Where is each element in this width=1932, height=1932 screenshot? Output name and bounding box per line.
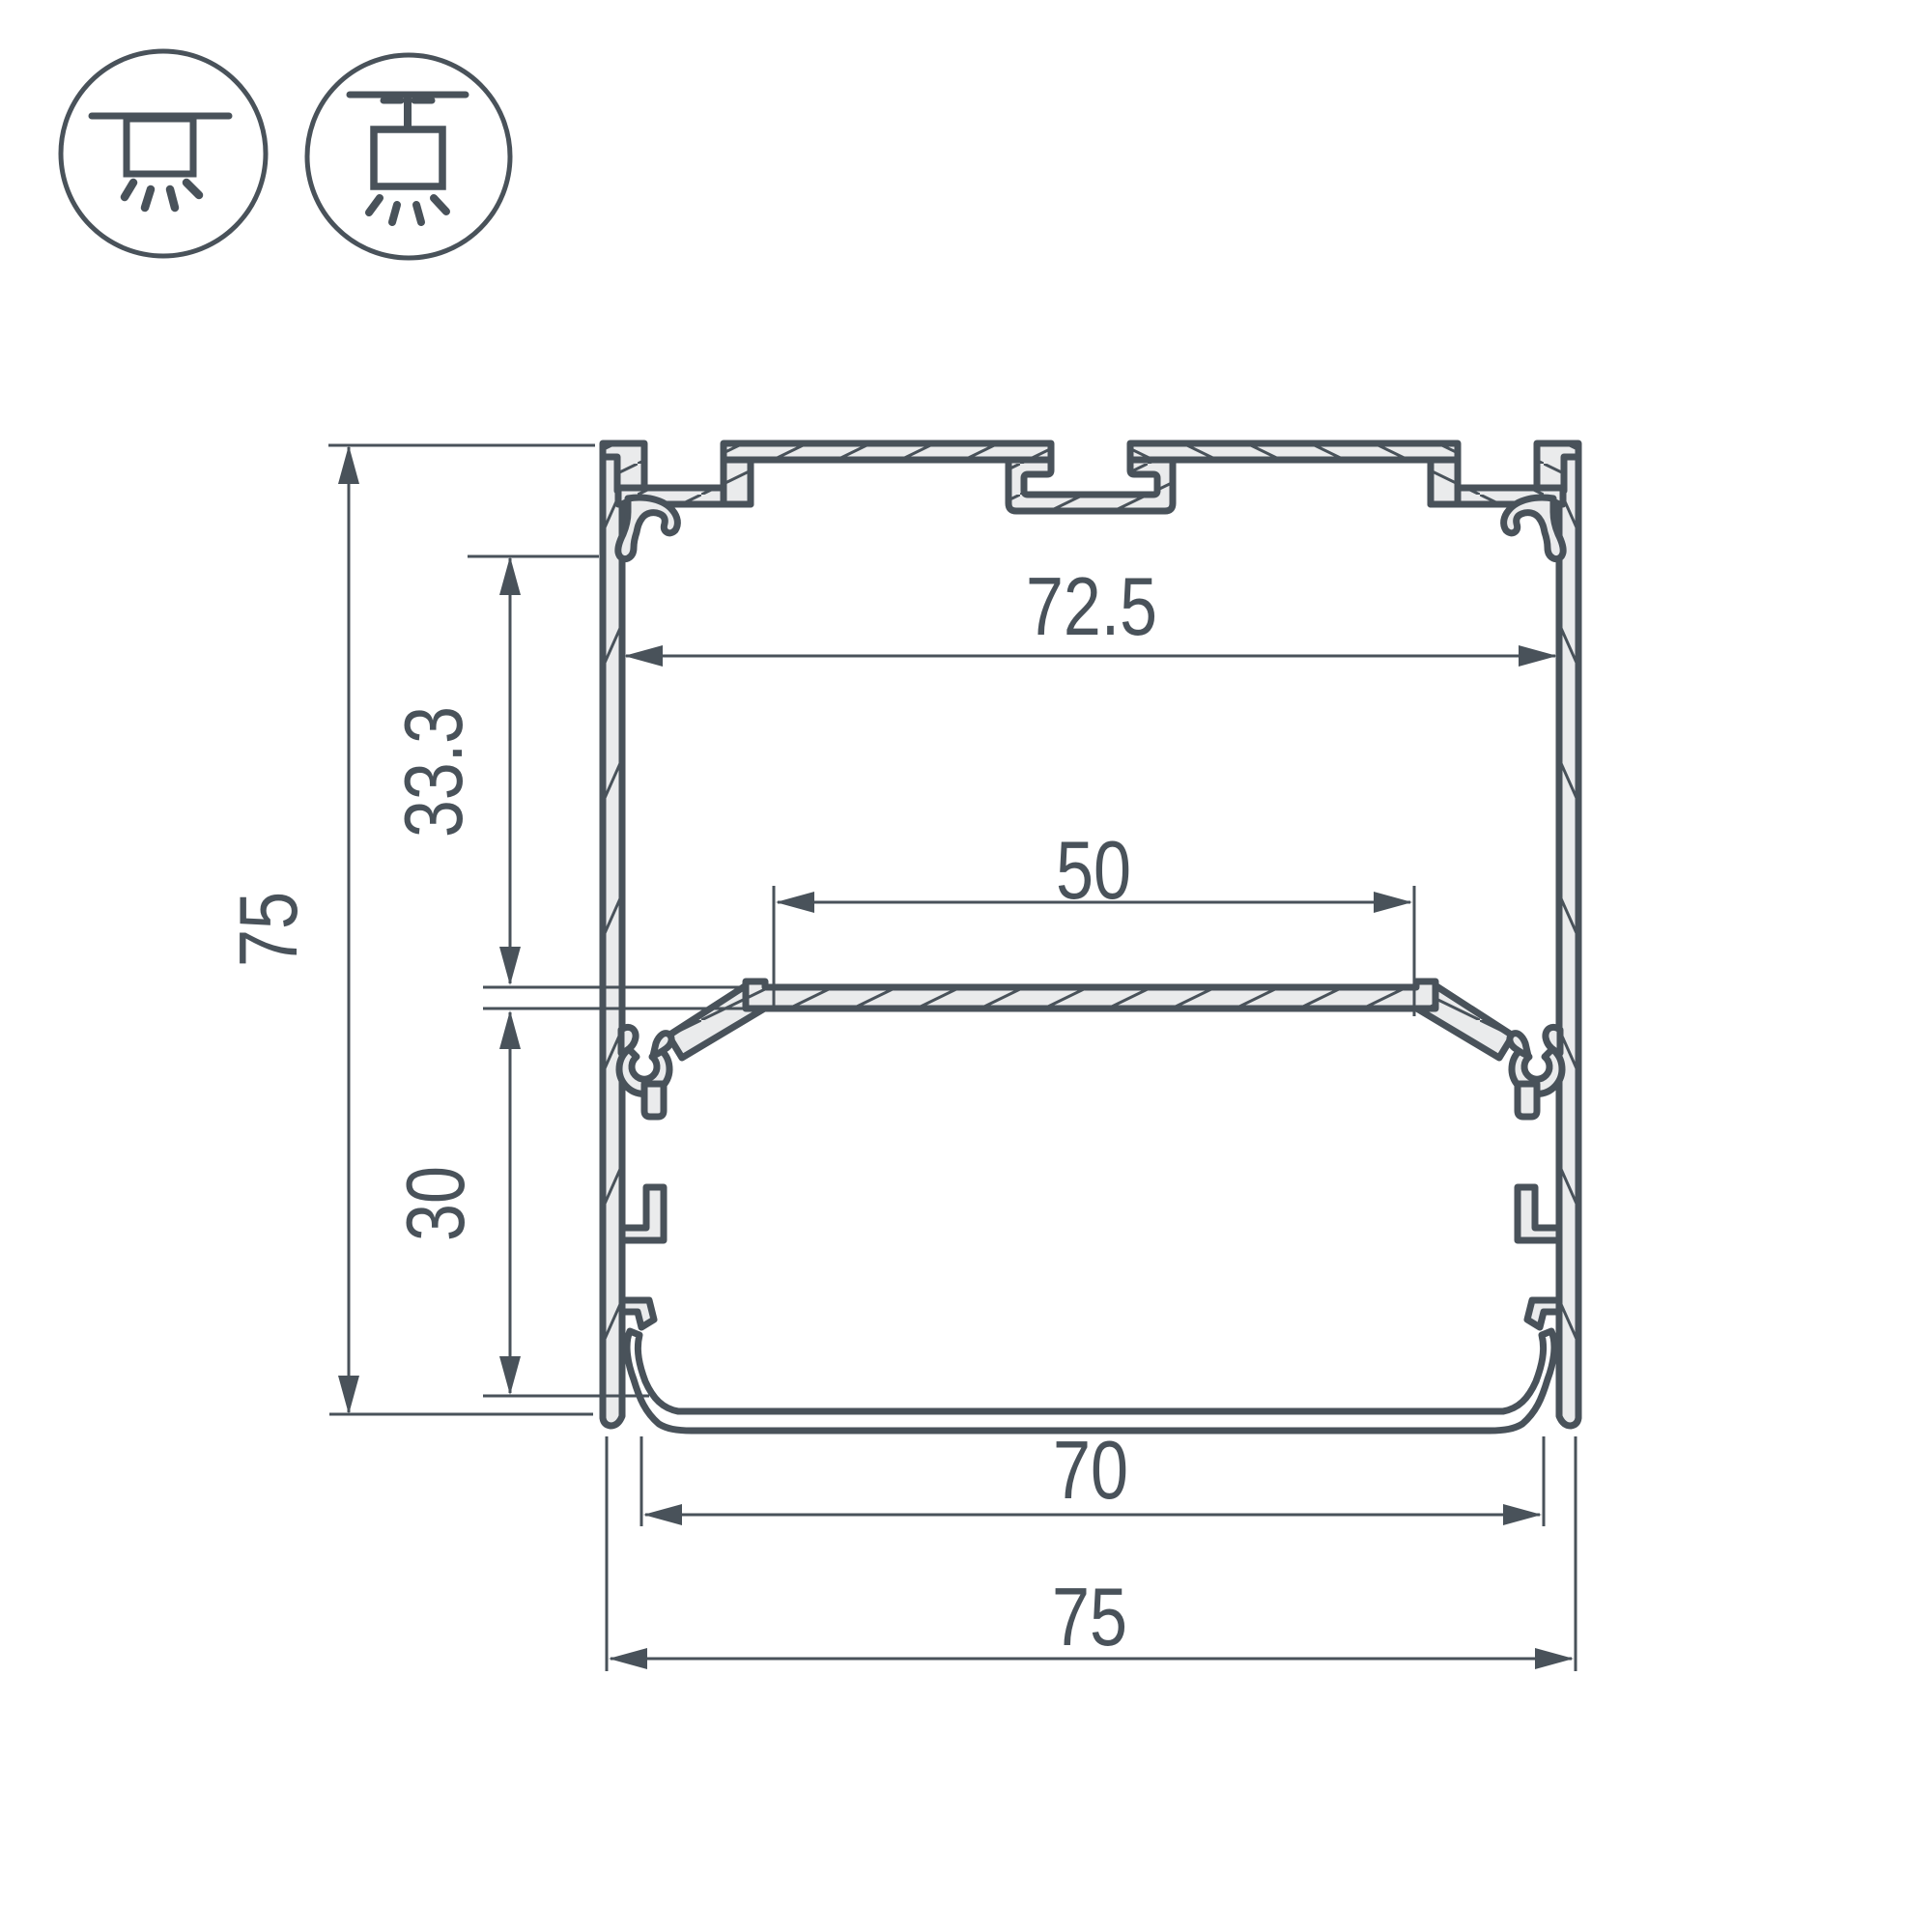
svg-text:72.5: 72.5 xyxy=(1026,561,1157,653)
svg-text:30: 30 xyxy=(390,1166,482,1241)
svg-text:70: 70 xyxy=(1053,1425,1128,1517)
svg-text:50: 50 xyxy=(1056,825,1131,917)
svg-text:33.3: 33.3 xyxy=(388,706,480,838)
svg-text:75: 75 xyxy=(223,892,315,967)
svg-text:75: 75 xyxy=(1052,1572,1127,1663)
